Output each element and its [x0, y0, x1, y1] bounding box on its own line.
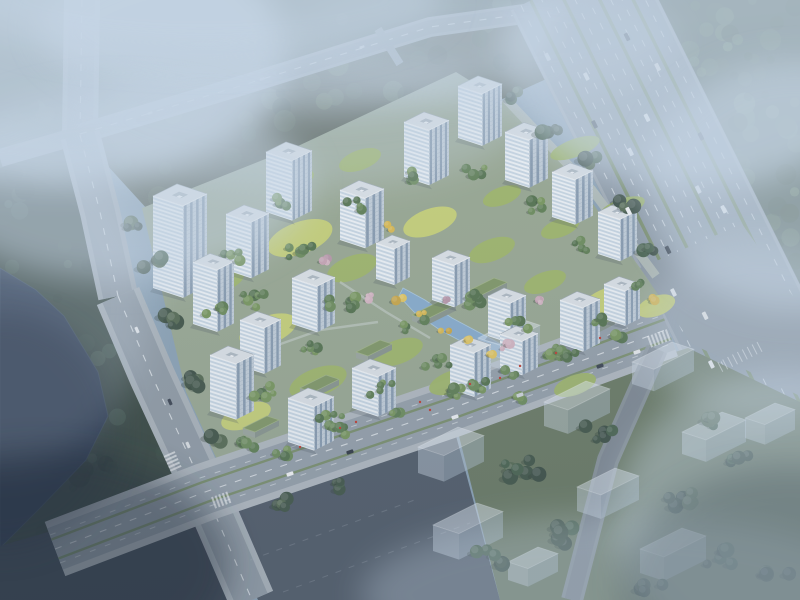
fog: [0, 0, 800, 600]
aerial-render-stage: [0, 0, 800, 600]
rendering-canvas: [0, 0, 800, 600]
